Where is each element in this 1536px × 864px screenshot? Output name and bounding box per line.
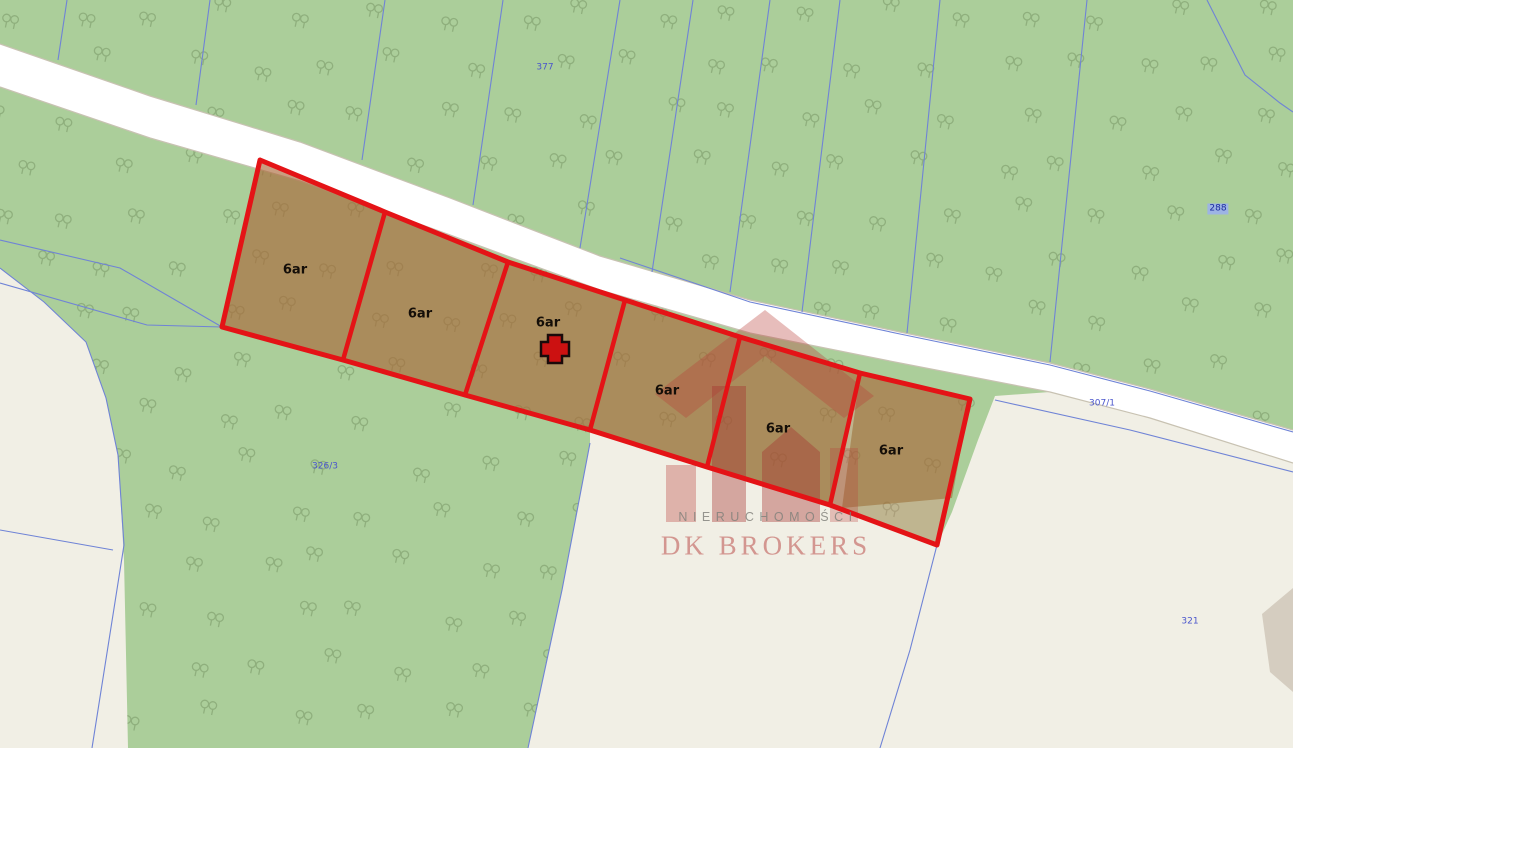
plot-area-label: 6ar: [879, 444, 903, 459]
watermark-title: DK BROKERS: [661, 531, 871, 562]
screenshot-stage: 377288326/3307/13216ar6ar6ar6ar6ar6ar NI…: [0, 0, 1536, 864]
plot-area-label: 6ar: [766, 422, 790, 437]
plot-area-label: 6ar: [655, 384, 679, 399]
plot-area-label: 6ar: [408, 307, 432, 322]
parcel-number-label: 307/1: [1089, 400, 1115, 409]
plot-area-label: 6ar: [536, 316, 560, 331]
parcel-number-label: 288: [1207, 204, 1228, 215]
map-canvas[interactable]: 377288326/3307/13216ar6ar6ar6ar6ar6ar NI…: [0, 0, 1293, 748]
parcel-number-label: 377: [536, 64, 553, 73]
parcel-number-label: 321: [1181, 618, 1198, 627]
parcel-number-label: 326/3: [312, 463, 338, 472]
plot-area-label: 6ar: [283, 263, 307, 278]
cadastral-map-svg: [0, 0, 1293, 748]
watermark-subtitle: NIERUCHOMOŚCI: [678, 510, 857, 524]
